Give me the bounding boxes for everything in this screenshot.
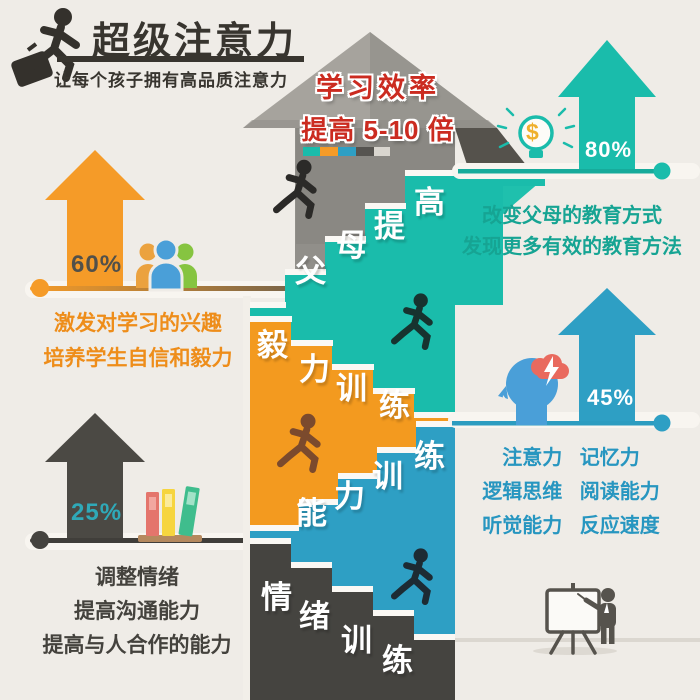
dollar-symbol: $: [526, 119, 539, 146]
progress-bar: [303, 147, 390, 156]
title-divider: [57, 56, 304, 62]
text-line: 听觉能力 反应速度: [452, 509, 690, 543]
text-line: 提高沟通能力: [8, 595, 266, 629]
stair-label-char: 绪: [299, 601, 330, 632]
text-line: 培养学生自信和毅力: [18, 341, 258, 376]
stair-label-char: 高: [414, 187, 445, 218]
percent-25: 25%: [71, 499, 122, 527]
headline-line2: 提高 5-10 倍: [272, 110, 484, 147]
floor-shadow: [533, 647, 617, 655]
stair-label-char: 母: [336, 230, 367, 261]
baseline-dot-60: [31, 279, 49, 297]
section-left-top-text: 激发对学习的兴趣 培养学生自信和毅力: [18, 306, 258, 376]
stair-label-char: 能: [296, 498, 327, 529]
text-line: 发现更多有效的教育方法: [446, 232, 698, 263]
stair-label-char: 练: [382, 645, 413, 676]
books-icon: [138, 486, 202, 542]
percent-80: 80%: [585, 137, 632, 163]
stair-label-char: 提: [374, 211, 405, 242]
headline: 学习效率 提高 5-10 倍: [272, 66, 484, 147]
baseline-45: [452, 421, 670, 426]
stair-label-char: 练: [414, 441, 445, 472]
stair-label-char: 训: [372, 461, 403, 492]
baseline-dot-45: [654, 415, 671, 432]
text-line: 注意力 记忆力: [452, 441, 690, 475]
stair-label-char: 父: [295, 256, 326, 287]
group-people-icon: [136, 239, 197, 290]
stair-label-char: 训: [336, 373, 367, 404]
baseline-dot-25: [31, 531, 49, 549]
stair-label-char: 力: [299, 354, 330, 385]
stair-label-char: 训: [341, 625, 372, 656]
infographic-poster: 超级注意力 让每个孩子拥有高品质注意力 学习效率 提高 5-10 倍 父 母 提…: [0, 0, 700, 700]
floor-line: [455, 638, 700, 642]
text-line: 调整情绪: [8, 561, 266, 595]
section-left-bottom-text: 调整情绪 提高沟通能力 提高与人合作的能力: [8, 561, 266, 663]
headline-line1: 学习效率: [272, 66, 484, 105]
stair-label-char: 毅: [257, 330, 288, 361]
percent-45: 45%: [587, 385, 634, 411]
baseline-80: [458, 169, 670, 174]
text-line: 提高与人合作的能力: [8, 629, 266, 663]
section-right-top-text: 改变父母的教育方式 发现更多有效的教育方法: [446, 201, 698, 263]
stair-label-char: 力: [334, 481, 365, 512]
text-line: 改变父母的教育方式: [446, 201, 698, 232]
stair-label-char: 练: [379, 390, 410, 421]
section-right-middle-text: 注意力 记忆力 逻辑思维 阅读能力 听觉能力 反应速度: [452, 441, 690, 543]
baseline-dot-80: [654, 163, 671, 180]
text-line: 激发对学习的兴趣: [18, 306, 258, 341]
percent-60: 60%: [71, 251, 122, 279]
text-line: 逻辑思维 阅读能力: [452, 475, 690, 509]
